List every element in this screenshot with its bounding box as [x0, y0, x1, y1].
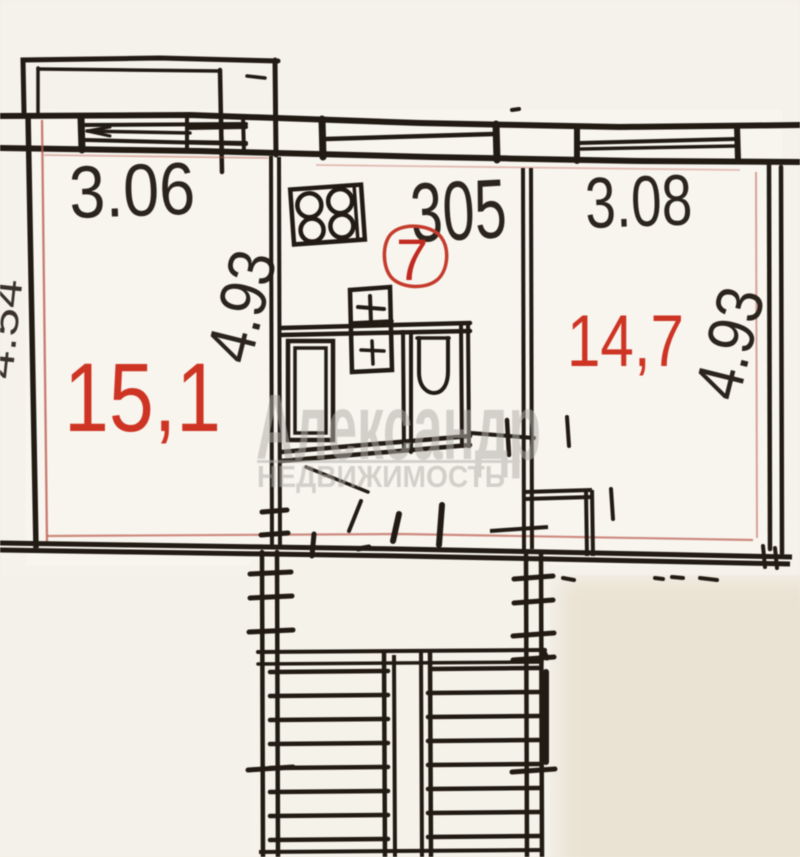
svg-text:3.08: 3.08 — [584, 160, 694, 244]
svg-text:НЕДВИЖИМОСТЬ: НЕДВИЖИМОСТЬ — [257, 459, 505, 494]
svg-text:14,7: 14,7 — [567, 301, 684, 382]
svg-text:15,1: 15,1 — [64, 343, 221, 452]
svg-text:3.06: 3.06 — [68, 147, 197, 234]
svg-text:7: 7 — [396, 228, 428, 293]
